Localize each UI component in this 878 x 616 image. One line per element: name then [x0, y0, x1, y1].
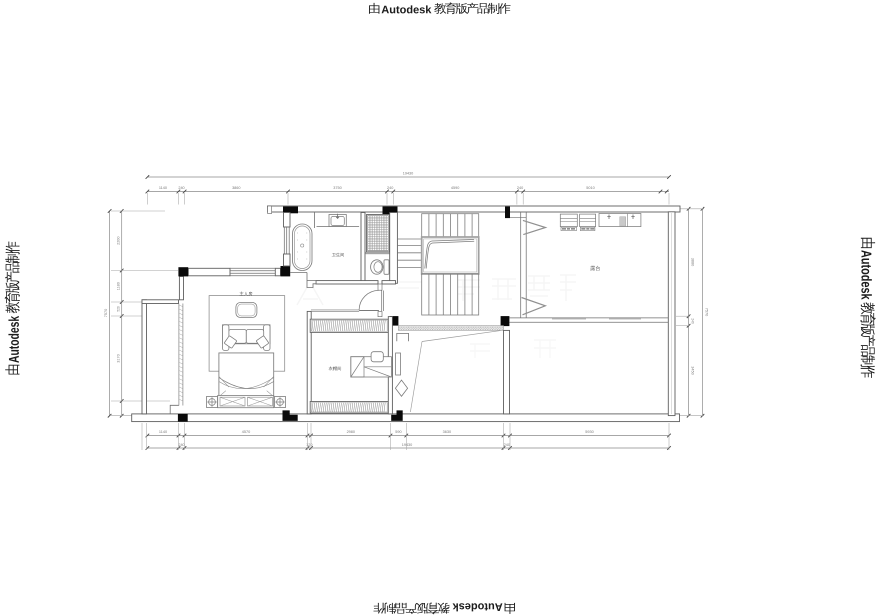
- svg-text:240: 240: [517, 186, 523, 190]
- svg-text:3880: 3880: [690, 258, 694, 266]
- svg-text:2200: 2200: [116, 236, 120, 244]
- svg-text:240: 240: [504, 443, 510, 447]
- svg-text:1140: 1140: [159, 186, 167, 190]
- svg-text:4590: 4590: [451, 186, 459, 190]
- svg-text:3450: 3450: [690, 366, 694, 374]
- svg-text:19430: 19430: [403, 172, 414, 176]
- svg-text:5930: 5930: [585, 430, 593, 434]
- svg-text:1180: 1180: [116, 282, 120, 290]
- svg-text:19430: 19430: [402, 443, 413, 447]
- svg-text:240: 240: [178, 443, 184, 447]
- svg-text:1140: 1140: [159, 430, 167, 434]
- svg-text:4570: 4570: [242, 430, 250, 434]
- svg-text:3170: 3170: [116, 354, 120, 362]
- svg-text:7570: 7570: [104, 309, 108, 317]
- svg-text:240: 240: [178, 186, 184, 190]
- svg-text:240: 240: [387, 186, 393, 190]
- svg-text:3860: 3860: [232, 186, 240, 190]
- svg-text:520: 520: [116, 306, 120, 312]
- svg-text:7570: 7570: [704, 308, 708, 316]
- svg-text:3630: 3630: [443, 430, 451, 434]
- svg-text:240: 240: [690, 318, 694, 324]
- svg-text:120: 120: [306, 443, 312, 447]
- svg-text:3750: 3750: [333, 186, 341, 190]
- svg-text:590: 590: [395, 430, 401, 434]
- svg-text:2980: 2980: [347, 430, 355, 434]
- svg-text:5010: 5010: [586, 186, 594, 190]
